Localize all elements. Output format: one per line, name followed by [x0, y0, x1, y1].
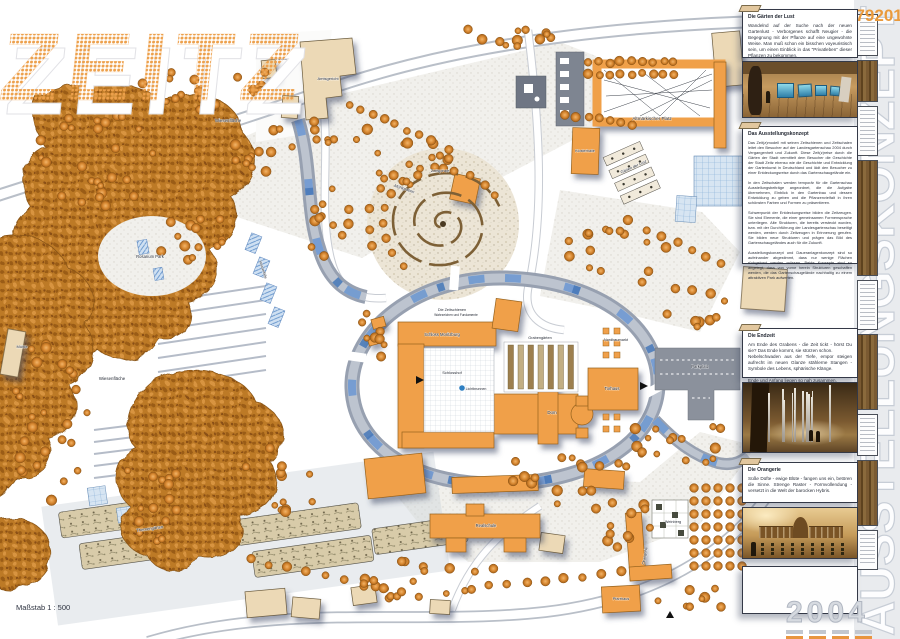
gray-dashes	[786, 630, 898, 634]
year-2004: 2004	[786, 598, 898, 628]
panel-orangerie: Die Orangerie Süße Düfte - ewige Blüte -…	[742, 462, 858, 503]
map-label: Torhaus	[605, 386, 620, 391]
panel-tab	[738, 5, 761, 12]
map-label: Wahrzeichen und Fundamente	[434, 313, 478, 317]
map-label: Zeitspirale	[431, 168, 450, 173]
strip-photo	[857, 60, 878, 102]
map-label: Dom	[547, 410, 557, 415]
map-label: Grabengärten	[528, 336, 551, 340]
panel-body: Süße Düfte - ewige Blüte - fangen uns ei…	[748, 476, 852, 494]
strip-photo	[857, 160, 878, 276]
map-label: Amtsgericht	[317, 76, 339, 81]
panel-title: Das Ausstellungskonzept	[748, 131, 852, 137]
scale-label: Maßstab 1 : 500	[16, 603, 70, 612]
strip-box	[857, 530, 878, 570]
map-label: Die Zeitschienen	[438, 308, 466, 312]
zeitz-logo-dotted: ZEITZ	[0, 14, 313, 121]
map-label: Klosterhalle	[575, 149, 595, 153]
year-block: 2004	[786, 598, 898, 639]
panel-gaerten-der-lust: Die Gärten der Lust Wandelnd auf der Suc…	[742, 9, 858, 58]
graben-gardens	[504, 342, 578, 392]
photo-endzeit-forest	[742, 382, 858, 453]
strip-box	[857, 280, 878, 330]
panel-body: Am Ende des Grabens - die Zeit tickt - h…	[748, 342, 852, 384]
panel-ausstellungskonzept: Das Ausstellungskonzept Das Zeit(z)model…	[742, 126, 858, 264]
schloss-south-wing	[402, 432, 494, 448]
map-label: Rosarium Park	[136, 254, 165, 259]
photo-exhibition-cubes	[742, 61, 858, 118]
lichtbrunnen-fountain	[459, 385, 465, 391]
panel-body: Wandelnd auf der Suche nach der neuen Ga…	[748, 23, 852, 59]
map-label: Wiesenfläche	[99, 376, 126, 381]
panel-title: Die Gärten der Lust	[748, 14, 852, 20]
map-label: Nordbaumarkt	[604, 338, 629, 342]
plan-sheet: Herzog-Moritz-PlatzAmtsgerichtWiesenfläc…	[0, 0, 900, 639]
panel-tab	[738, 324, 761, 331]
water-plaza	[694, 156, 742, 206]
baroque-parterre	[652, 500, 688, 538]
map-label: Pfarrhaus	[613, 597, 630, 601]
panel-body: Das Zeit(z)modell mit seinen Zeitschiene…	[748, 140, 852, 280]
panel-title: Die Orangerie	[748, 467, 852, 473]
map-label: Lichtbrunnen	[466, 387, 487, 391]
map-label: Weinberg	[665, 520, 681, 524]
map-label: Altmärkischer Platz	[632, 116, 672, 121]
dom-nave	[494, 394, 578, 434]
photo-orangerie-view	[742, 507, 858, 559]
panel-title: Die Endzeit	[748, 333, 852, 339]
strip-photo	[857, 460, 878, 526]
map-label: Mühle	[17, 344, 29, 349]
image-strip	[857, 0, 878, 639]
strip-photo	[857, 334, 878, 410]
strip-box	[857, 414, 878, 456]
map-label: Schlosshof	[442, 370, 462, 375]
panel-endzeit: Die Endzeit Am Ende des Grabens - die Ze…	[742, 328, 858, 378]
pavillon-building	[450, 174, 481, 205]
schloss-annex	[492, 298, 522, 331]
map-label: Schloss Moritzburg	[424, 332, 460, 337]
map-label: Realschule	[476, 523, 497, 528]
zeitz-logo: ZEITZ ZEITZ	[0, 14, 321, 135]
map-label: Parkplatz	[691, 364, 708, 369]
strip-box	[857, 106, 878, 156]
panel-tab	[738, 122, 761, 129]
panel-tab	[738, 458, 761, 465]
